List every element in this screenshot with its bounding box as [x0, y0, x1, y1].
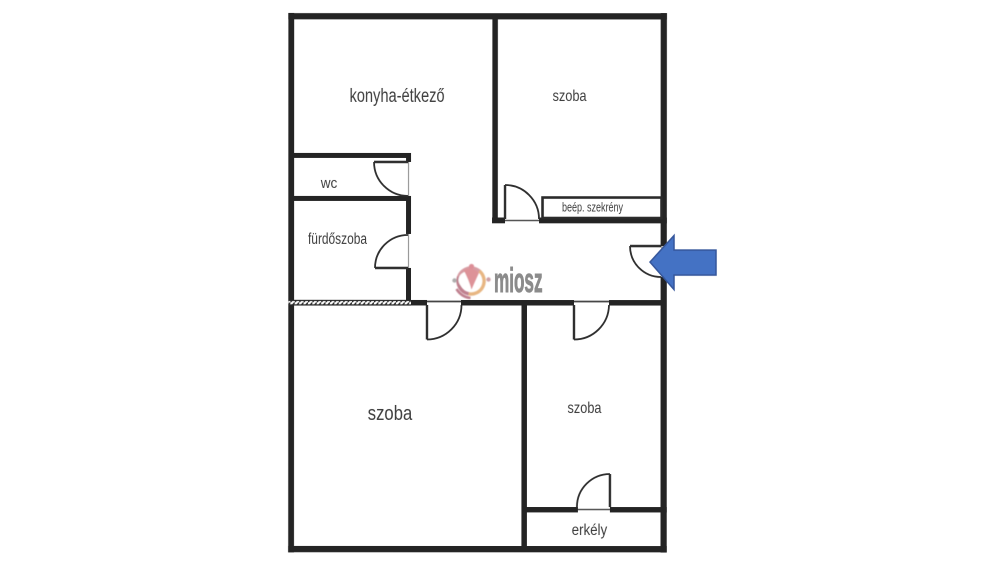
svg-text:szoba: szoba	[567, 400, 601, 417]
svg-text:fürdőszoba: fürdőszoba	[308, 231, 367, 248]
svg-text:szoba: szoba	[368, 402, 413, 425]
svg-text:beép. szekrény: beép. szekrény	[562, 201, 624, 215]
svg-text:miosz: miosz	[494, 262, 543, 300]
svg-text:erkély: erkély	[572, 522, 608, 539]
svg-text:wc: wc	[320, 175, 338, 192]
svg-text:konyha-étkező: konyha-étkező	[350, 86, 445, 107]
svg-text:szoba: szoba	[553, 88, 587, 105]
